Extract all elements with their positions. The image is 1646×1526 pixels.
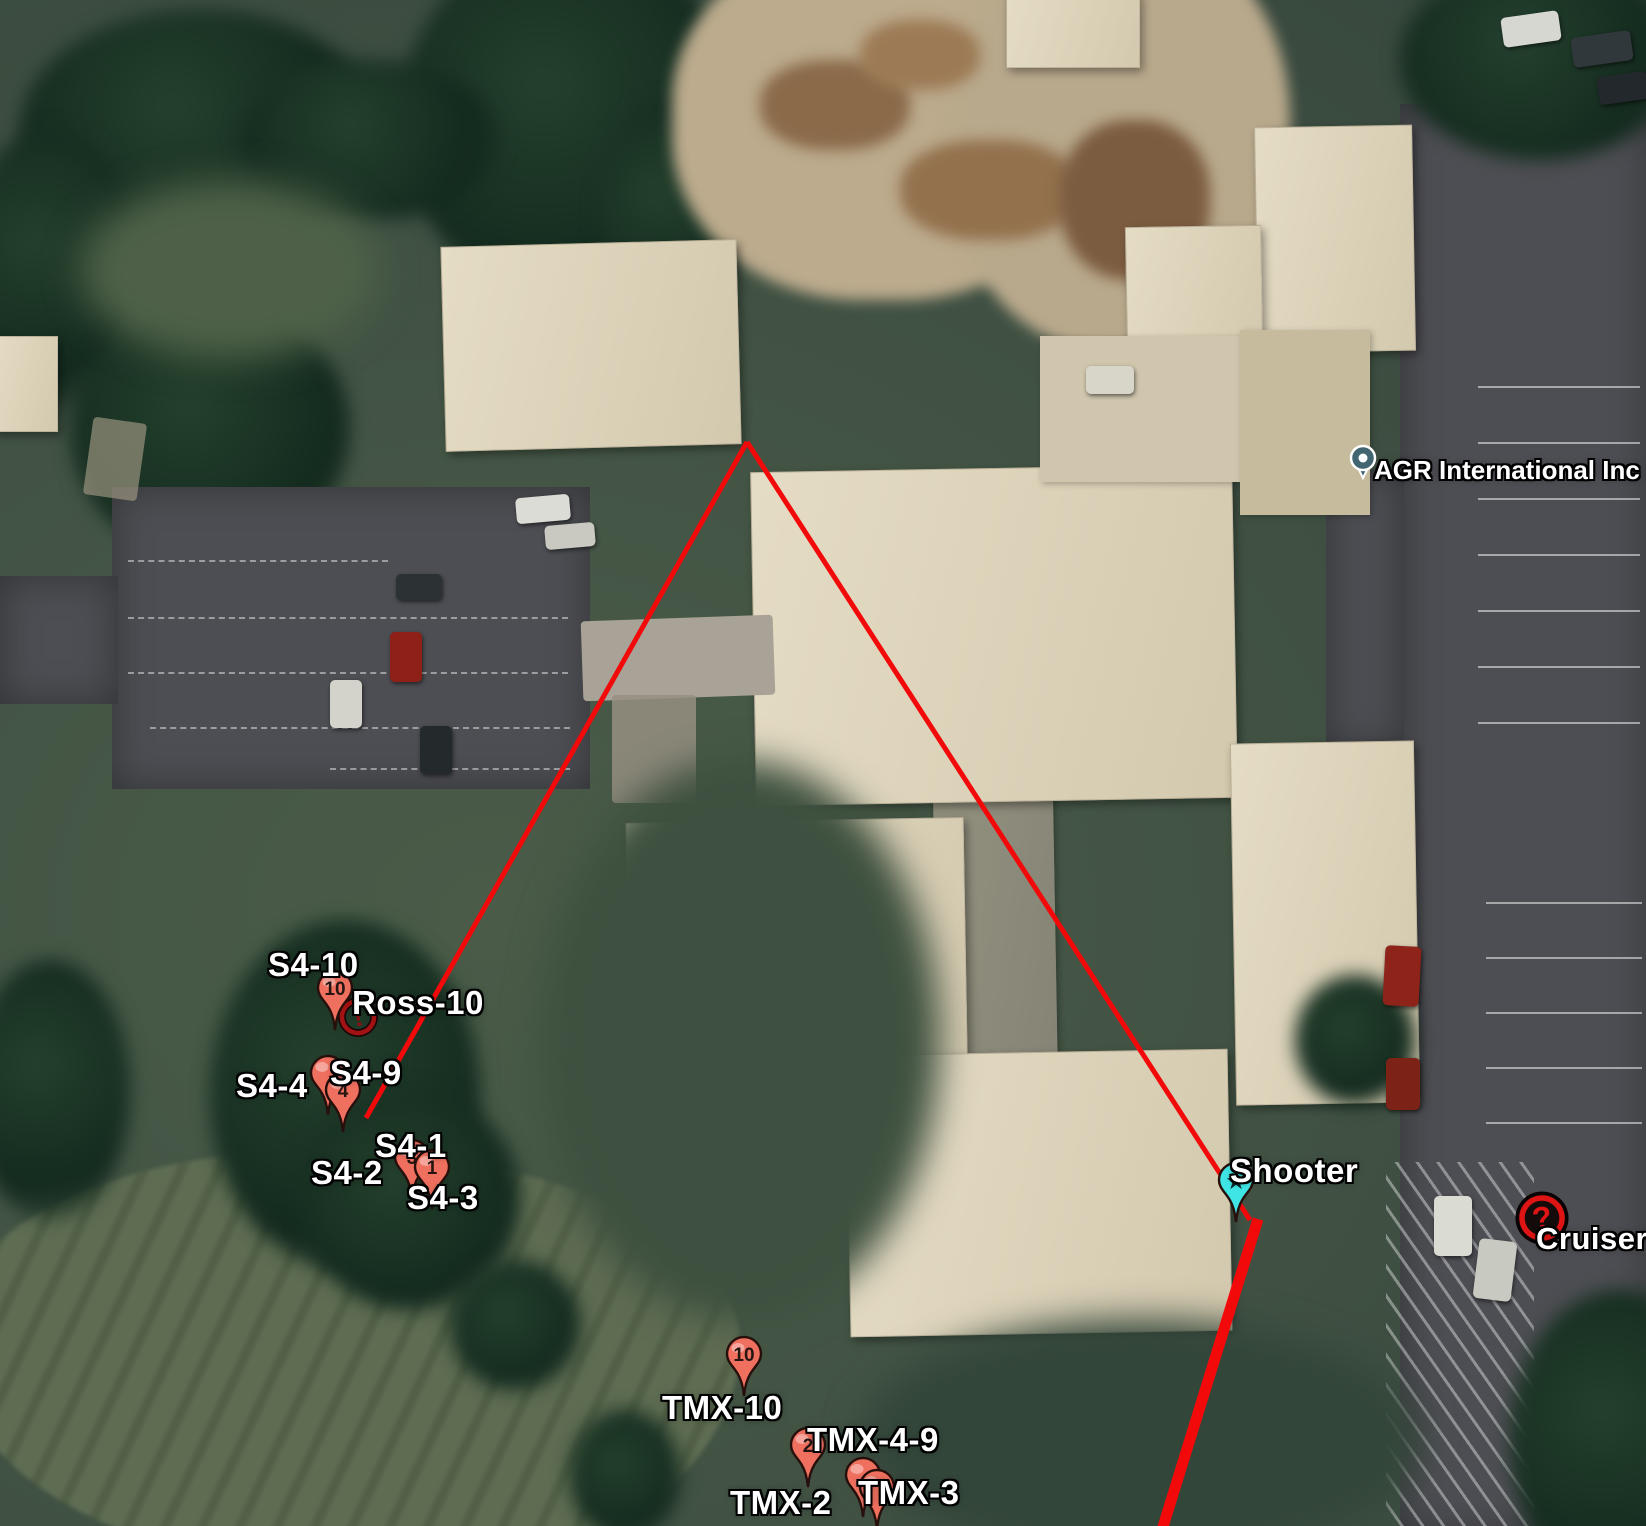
parking-stripe [128,617,568,619]
parking-stripe [1486,957,1642,959]
parking-stripe [1486,1067,1642,1069]
dirt-patch [900,140,1080,240]
building-roof [1006,0,1140,68]
tree-canopy [450,1260,580,1390]
car [1086,366,1134,394]
business-pin-icon[interactable] [1349,444,1377,480]
car [1386,1058,1420,1110]
parking-lot-entrance [0,576,118,704]
marker-label-shooter[interactable]: Shooter [1230,1152,1358,1190]
car [1434,1196,1472,1256]
parking-stripe [1478,610,1640,612]
parking-stripe [128,560,388,562]
walkway [581,615,776,702]
parking-stripe [1478,498,1640,500]
parking-stripe [1478,666,1640,668]
marker-label-s4-1[interactable]: S4-1 [375,1127,447,1165]
marker-label-tmx-3[interactable]: TMX-3 [858,1474,960,1512]
marker-label-s4-2[interactable]: S4-2 [311,1154,383,1192]
building-roof [1254,125,1416,354]
parking-stripe [1478,722,1640,724]
car [1382,945,1421,1007]
marker-label-s4-10[interactable]: S4-10 [268,946,359,984]
parking-lot-left [112,487,590,789]
grass-patch [540,760,940,1320]
business-label-agr[interactable]: AGR International Inc [1374,455,1640,486]
car [1472,1238,1517,1302]
parking-stripe [1478,386,1640,388]
marker-label-ross-10[interactable]: Ross-10 [352,984,484,1022]
car [515,494,571,525]
marker-label-cruiser[interactable]: Cruiser [1536,1221,1646,1257]
dirt-patch [860,20,980,90]
marker-label-s4-9[interactable]: S4-9 [330,1054,402,1092]
marker-label-tmx-4-9[interactable]: TMX-4-9 [807,1421,939,1459]
walkway [83,417,147,502]
concrete-pad [1040,336,1240,482]
grass-patch [80,180,380,360]
car [396,574,442,600]
marker-label-s4-3[interactable]: S4-3 [407,1179,479,1217]
car [544,522,596,550]
marker-label-tmx-2[interactable]: TMX-2 [730,1484,832,1522]
parking-stripe [1478,554,1640,556]
car [390,632,422,682]
parking-stripe [128,672,568,674]
pin-number: 10 [733,1345,754,1366]
marker-label-s4-4[interactable]: S4-4 [236,1067,308,1105]
car [420,726,452,774]
parking-stripe [1486,1122,1642,1124]
building-roof [0,336,58,432]
parking-stripe [1478,442,1640,444]
parking-stripe [1486,1012,1642,1014]
satellite-map-canvas[interactable]: ! ? 4 10 3 1 10 [0,0,1646,1526]
marker-label-tmx-10[interactable]: TMX-10 [662,1389,782,1427]
car [330,680,362,728]
parking-stripe [150,727,570,729]
building-roof [440,239,741,452]
concrete-pad [1240,330,1370,515]
parking-stripe [1486,902,1642,904]
building-roof [750,464,1238,806]
